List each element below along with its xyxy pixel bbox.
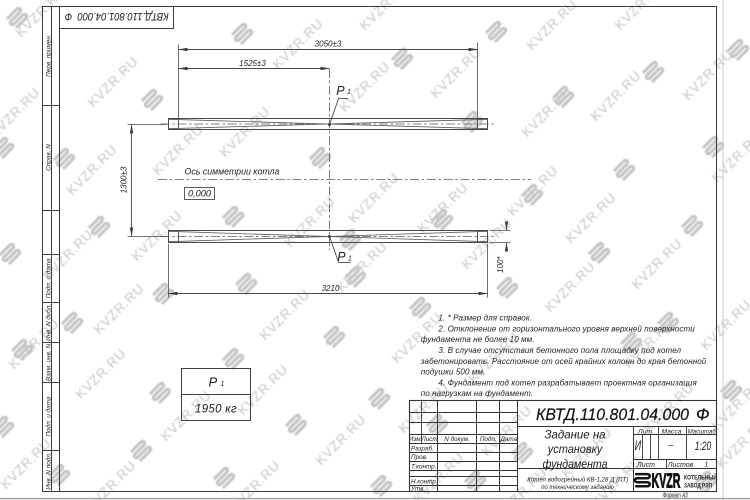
- svg-text:Подп. и дата: Подп. и дата: [44, 258, 52, 298]
- svg-text:1: 1: [347, 89, 351, 96]
- svg-text:Лист: Лист: [636, 462, 655, 469]
- svg-text:–: –: [667, 440, 674, 451]
- svg-text:100*: 100*: [496, 256, 505, 273]
- svg-text:фундамента: фундамента: [543, 457, 608, 471]
- svg-text:Инв. N дубл.: Инв. N дубл.: [44, 304, 52, 341]
- svg-text:ЗАВОД РЭП: ЗАВОД РЭП: [684, 482, 712, 489]
- svg-text:забетонировать. Расстояние от: забетонировать. Расстояние от осей крайн…: [420, 357, 707, 366]
- svg-text:1: 1: [705, 462, 709, 469]
- svg-text:Утв.: Утв.: [410, 486, 425, 493]
- svg-text:1. * Размер для справок.: 1. * Размер для справок.: [438, 314, 532, 323]
- svg-text:Т.контр.: Т.контр.: [411, 463, 436, 470]
- svg-text:установку: установку: [547, 442, 603, 456]
- svg-text:P: P: [337, 250, 346, 264]
- svg-text:P: P: [336, 84, 345, 98]
- svg-text:0,000: 0,000: [188, 189, 212, 199]
- svg-text:по техническому заданию: по техническому заданию: [541, 484, 614, 491]
- svg-text:Подп. и дата: Подп. и дата: [44, 396, 52, 436]
- svg-text:2. Отклонение от горизонтальн: 2. Отклонение от горизонтального уровня …: [437, 324, 695, 333]
- svg-text:КОТЕЛЬНЫЙ: КОТЕЛЬНЫЙ: [684, 474, 717, 482]
- svg-text:Подп.: Подп.: [480, 435, 497, 443]
- svg-text:Н.контр.: Н.контр.: [411, 478, 438, 485]
- svg-text:Масштаб: Масштаб: [688, 427, 717, 435]
- svg-text:3210: 3210: [322, 284, 340, 293]
- svg-text:Масса: Масса: [662, 428, 682, 435]
- svg-text:Изм.: Изм.: [409, 436, 422, 443]
- svg-text:1300±3: 1300±3: [119, 166, 128, 193]
- svg-text:Инв. N подл.: Инв. N подл.: [44, 452, 52, 489]
- svg-text:Разраб.: Разраб.: [411, 445, 434, 453]
- svg-text:KVZR: KVZR: [652, 471, 681, 493]
- svg-text:Перв. примен.: Перв. примен.: [45, 34, 52, 76]
- svg-text:Ось симметрии котла: Ось симметрии котла: [185, 166, 280, 176]
- svg-text:3050±3: 3050±3: [315, 40, 342, 49]
- svg-text:1: 1: [221, 381, 225, 388]
- svg-text:P: P: [209, 374, 218, 389]
- svg-text:Листов: Листов: [667, 462, 694, 469]
- svg-text:4. Фундамент под котел разраб: 4. Фундамент под котел разрабатывает про…: [438, 378, 697, 387]
- svg-text:Дата: Дата: [499, 436, 517, 443]
- svg-text:1: 1: [348, 255, 352, 262]
- svg-text:1525±3: 1525±3: [239, 59, 266, 68]
- svg-text:Ф: Ф: [696, 405, 710, 424]
- svg-text:подушки 500 мм.: подушки 500 мм.: [421, 368, 486, 377]
- svg-text:Пров.: Пров.: [411, 454, 428, 461]
- svg-text:И: И: [635, 438, 642, 453]
- svg-text:3. В случае отсутствия бетонн: 3. В случае отсутствия бетонного пола пл…: [438, 346, 681, 355]
- svg-text:фундамента не более 10 мм.: фундамента не более 10 мм.: [421, 335, 535, 344]
- svg-text:Котел водогрейный КВ-1,28 Д (П: Котел водогрейный КВ-1,28 Д (ПТ): [527, 477, 628, 484]
- svg-text:Взам. инв. N: Взам. инв. N: [45, 344, 52, 382]
- svg-text:1950 кг: 1950 кг: [195, 403, 237, 415]
- svg-text:Справ. N: Справ. N: [45, 144, 52, 171]
- svg-text:Задание на: Задание на: [545, 428, 606, 442]
- svg-text:Лит.: Лит.: [637, 428, 654, 435]
- svg-text:Лист: Лист: [420, 436, 437, 443]
- svg-text:КВТД.110.801.04.000: КВТД.110.801.04.000: [536, 405, 689, 424]
- svg-text:по нагрузкам на фундамент.: по нагрузкам на фундамент.: [421, 389, 533, 398]
- svg-text:КВТД.110.801.04.000 Ф: КВТД.110.801.04.000 Ф: [64, 10, 168, 22]
- svg-text:N докум.: N докум.: [444, 435, 469, 443]
- svg-text:1:20: 1:20: [695, 439, 712, 453]
